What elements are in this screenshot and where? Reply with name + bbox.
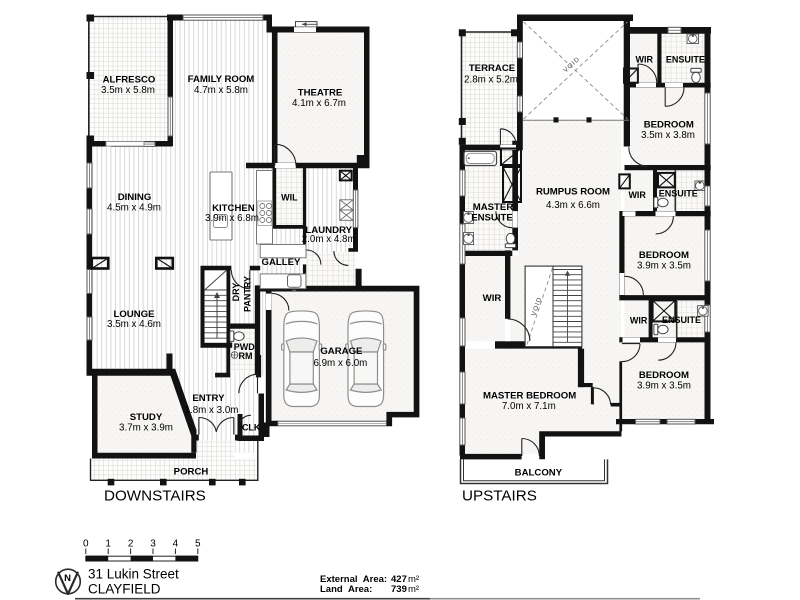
- svg-text:GARAGE: GARAGE: [320, 346, 363, 357]
- svg-text:RM: RM: [239, 351, 253, 361]
- svg-text:2: 2: [128, 539, 134, 550]
- svg-text:N: N: [64, 573, 71, 584]
- svg-text:WIR: WIR: [483, 293, 502, 304]
- svg-text:2.8m x 5.2m: 2.8m x 5.2m: [464, 74, 518, 85]
- svg-text:WIR: WIR: [628, 190, 646, 200]
- svg-text:ENTRY: ENTRY: [192, 393, 225, 404]
- svg-text:GALLEY: GALLEY: [262, 257, 302, 268]
- svg-text:TERRACE: TERRACE: [469, 63, 516, 74]
- svg-text:m²: m²: [408, 584, 419, 595]
- svg-text:FAMILY ROOM: FAMILY ROOM: [188, 74, 255, 85]
- svg-text:ENSUITE: ENSUITE: [659, 188, 698, 198]
- svg-text:739: 739: [391, 584, 407, 595]
- svg-text:1.8m x 3.0m: 1.8m x 3.0m: [185, 405, 239, 416]
- svg-text:UPSTAIRS: UPSTAIRS: [462, 488, 537, 505]
- svg-text:4.5m x 4.9m: 4.5m x 4.9m: [107, 203, 161, 214]
- svg-text:DRY: DRY: [231, 283, 241, 302]
- svg-text:3.5m x 3.8m: 3.5m x 3.8m: [641, 130, 695, 141]
- svg-text:31 Lukin Street: 31 Lukin Street: [88, 567, 179, 582]
- svg-text:DOWNSTAIRS: DOWNSTAIRS: [104, 488, 206, 505]
- svg-text:3.9m x 3.5m: 3.9m x 3.5m: [637, 260, 691, 271]
- svg-text:PORCH: PORCH: [174, 467, 209, 478]
- svg-text:STUDY: STUDY: [130, 412, 163, 423]
- svg-text:CLAYFIELD: CLAYFIELD: [88, 582, 161, 597]
- svg-text:3: 3: [150, 539, 156, 550]
- svg-text:ENSUITE: ENSUITE: [666, 54, 705, 64]
- svg-text:ENSUITE: ENSUITE: [662, 315, 701, 325]
- svg-text:3.5m x 5.8m: 3.5m x 5.8m: [101, 85, 155, 96]
- svg-text:3.9m x 6.8m: 3.9m x 6.8m: [205, 213, 259, 224]
- svg-text:WIR: WIR: [630, 315, 648, 325]
- svg-text:3.5m x 4.6m: 3.5m x 4.6m: [107, 319, 161, 330]
- svg-text:7.0m x 7.1m: 7.0m x 7.1m: [502, 401, 556, 412]
- svg-text:WIL: WIL: [281, 192, 298, 202]
- svg-text:CLK: CLK: [242, 423, 261, 433]
- svg-text:2.0m x 4.8m: 2.0m x 4.8m: [302, 234, 356, 245]
- svg-text:BEDROOM: BEDROOM: [639, 370, 689, 381]
- svg-text:WIR: WIR: [636, 54, 654, 64]
- svg-text:Land Area:: Land Area:: [320, 584, 372, 595]
- svg-text:PANTRY: PANTRY: [243, 276, 253, 312]
- svg-text:BALCONY: BALCONY: [515, 468, 563, 479]
- svg-text:DINING: DINING: [118, 192, 152, 203]
- svg-text:3.9m x 3.5m: 3.9m x 3.5m: [637, 381, 691, 392]
- svg-text:1: 1: [105, 539, 111, 550]
- svg-text:THEATRE: THEATRE: [298, 87, 343, 98]
- svg-text:6.9m x 6.0m: 6.9m x 6.0m: [313, 358, 367, 369]
- svg-text:5: 5: [195, 539, 201, 550]
- svg-text:ALFRESCO: ALFRESCO: [103, 75, 156, 86]
- svg-text:4.1m x 6.7m: 4.1m x 6.7m: [292, 98, 346, 109]
- svg-text:0: 0: [83, 539, 89, 550]
- svg-text:4: 4: [173, 539, 179, 550]
- svg-text:3.7m x 3.9m: 3.7m x 3.9m: [119, 422, 173, 433]
- svg-text:ENSUITE: ENSUITE: [471, 212, 513, 223]
- svg-text:4.7m x 5.8m: 4.7m x 5.8m: [194, 85, 248, 96]
- svg-text:4.3m x 6.6m: 4.3m x 6.6m: [546, 200, 600, 211]
- svg-text:RUMPUS ROOM: RUMPUS ROOM: [536, 187, 610, 198]
- svg-text:KITCHEN: KITCHEN: [212, 203, 255, 214]
